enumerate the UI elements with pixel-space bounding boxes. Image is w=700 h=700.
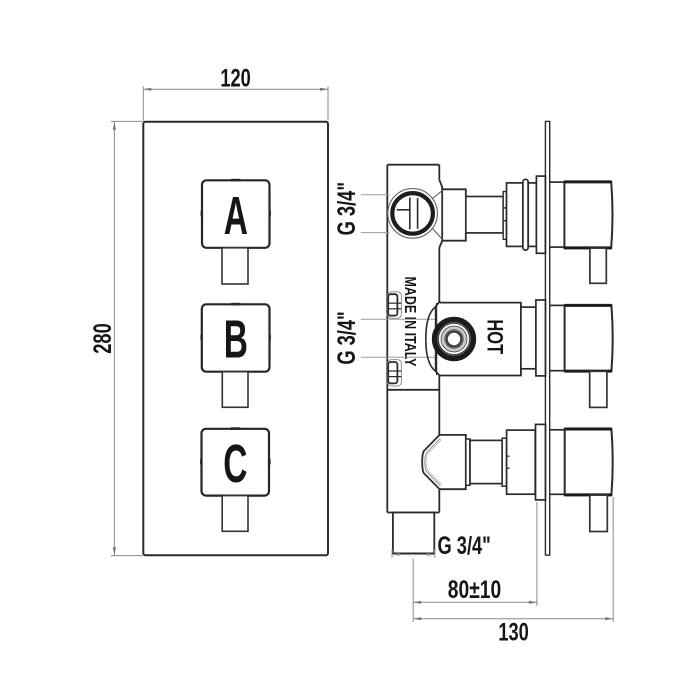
svg-text:80±10: 80±10: [448, 576, 501, 604]
svg-text:MADE IN ITALY: MADE IN ITALY: [401, 276, 419, 366]
svg-text:G 3/4": G 3/4": [438, 531, 491, 559]
svg-text:A: A: [224, 185, 248, 246]
svg-text:C: C: [223, 433, 247, 494]
svg-text:120: 120: [220, 64, 250, 92]
svg-text:HOT: HOT: [482, 319, 507, 354]
svg-text:130: 130: [498, 618, 528, 646]
svg-text:G 3/4": G 3/4": [332, 311, 360, 364]
svg-text:B: B: [224, 308, 248, 369]
svg-text:G 3/4": G 3/4": [332, 182, 360, 235]
svg-text:280: 280: [88, 323, 116, 353]
